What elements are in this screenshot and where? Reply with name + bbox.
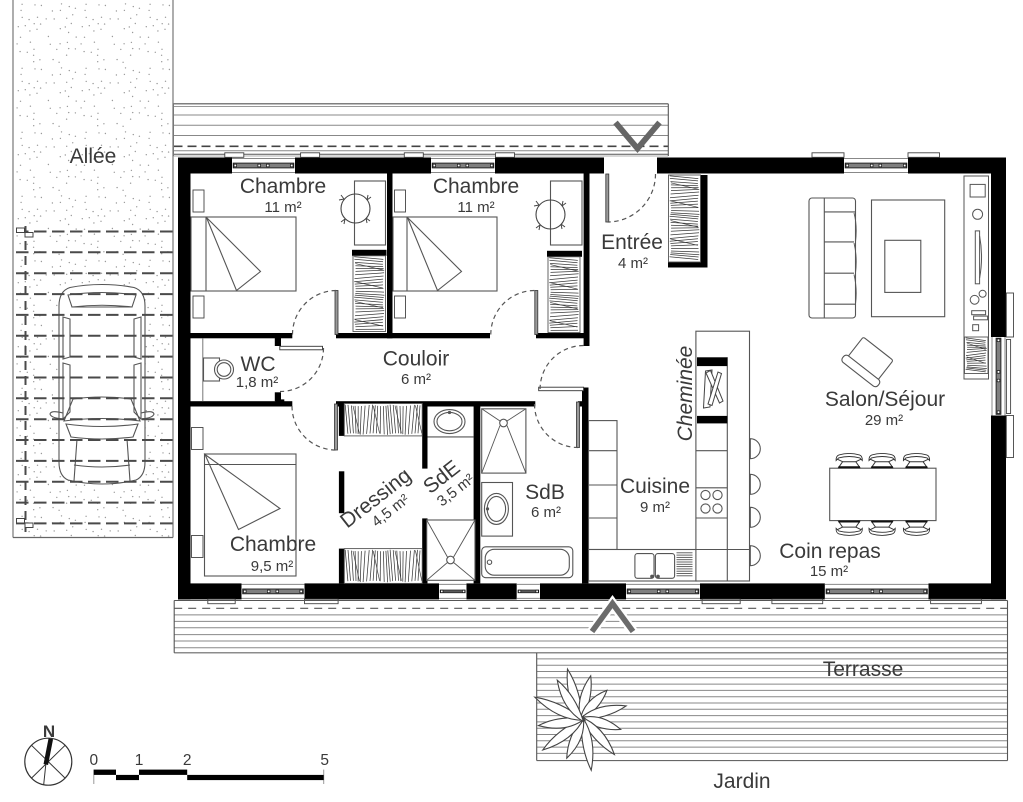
svg-text:N: N [43,722,55,741]
svg-text:1: 1 [135,752,144,769]
svg-text:SdB: SdB [525,481,565,504]
svg-text:Salon/Séjour: Salon/Séjour [825,388,945,411]
svg-text:Chambre: Chambre [240,175,326,198]
svg-text:29 m²: 29 m² [865,412,903,429]
svg-text:6 m²: 6 m² [531,504,561,521]
svg-text:6 m²: 6 m² [401,371,431,388]
svg-text:4 m²: 4 m² [618,255,648,272]
svg-text:Terrasse: Terrasse [823,658,904,681]
svg-text:9,5 m²: 9,5 m² [251,558,294,575]
svg-text:Coin repas: Coin repas [779,540,881,563]
svg-text:Chambre: Chambre [433,175,519,198]
svg-text:Entrée: Entrée [601,231,663,254]
svg-text:Cuisine: Cuisine [620,475,690,498]
svg-text:WC: WC [241,353,276,376]
svg-text:0: 0 [89,752,98,769]
svg-text:Couloir: Couloir [383,348,450,371]
svg-text:11 m²: 11 m² [264,199,301,216]
svg-text:9 m²: 9 m² [640,499,670,516]
svg-text:Allée: Allée [70,145,117,168]
svg-text:Chambre: Chambre [230,533,316,556]
svg-text:1,8 m²: 1,8 m² [236,374,279,391]
svg-text:2: 2 [183,752,192,769]
svg-text:11 m²: 11 m² [457,199,494,216]
svg-text:5: 5 [320,752,329,769]
svg-text:Jardin: Jardin [713,770,770,793]
svg-text:Cheminée: Cheminée [674,346,697,442]
svg-text:15 m²: 15 m² [810,563,848,580]
